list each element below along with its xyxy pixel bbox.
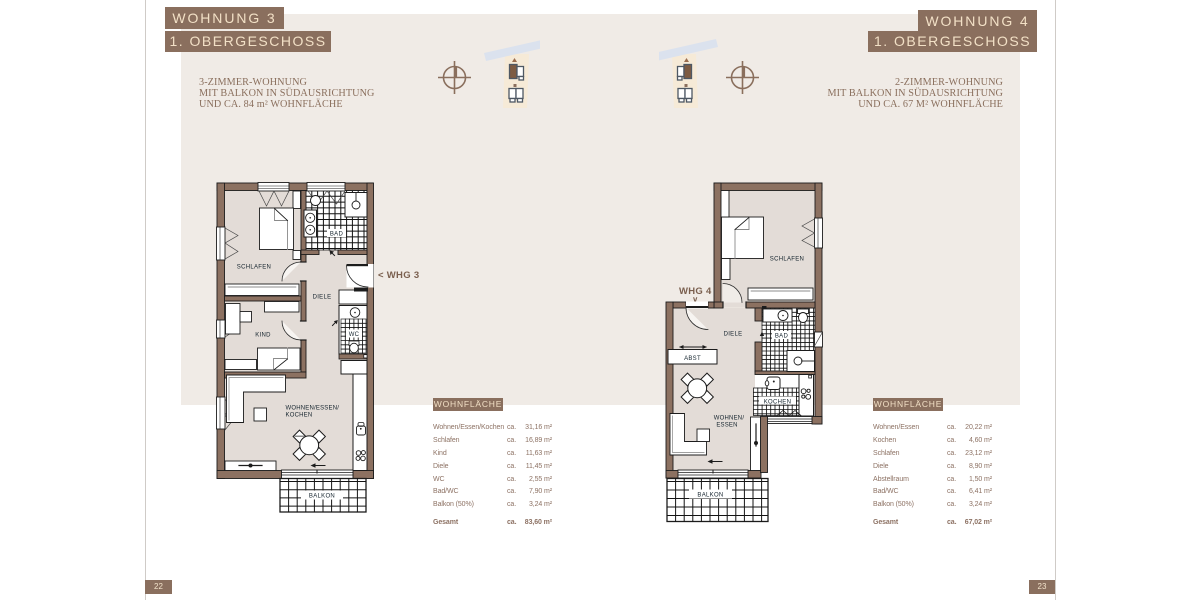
svg-text:BALKON: BALKON — [697, 493, 723, 499]
svg-text:WOHNEN/: WOHNEN/ — [714, 416, 745, 422]
svg-text:ESSEN: ESSEN — [716, 423, 737, 429]
svg-text:ABST: ABST — [684, 356, 701, 362]
svg-text:BAD: BAD — [775, 334, 789, 340]
svg-text:BALKON: BALKON — [309, 494, 335, 500]
svg-text:KIND: KIND — [255, 333, 271, 339]
svg-text:SCHLAFEN: SCHLAFEN — [770, 257, 804, 263]
svg-text:WOHNEN/ESSEN/: WOHNEN/ESSEN/ — [286, 406, 340, 412]
svg-text:KOCHEN: KOCHEN — [764, 400, 791, 406]
svg-text:BAD: BAD — [330, 232, 344, 238]
svg-text:WC: WC — [349, 332, 360, 338]
svg-text:KOCHEN: KOCHEN — [286, 413, 313, 419]
svg-text:SCHLAFEN: SCHLAFEN — [237, 265, 271, 271]
svg-text:DIELE: DIELE — [724, 332, 743, 338]
svg-text:DIELE: DIELE — [313, 295, 332, 301]
